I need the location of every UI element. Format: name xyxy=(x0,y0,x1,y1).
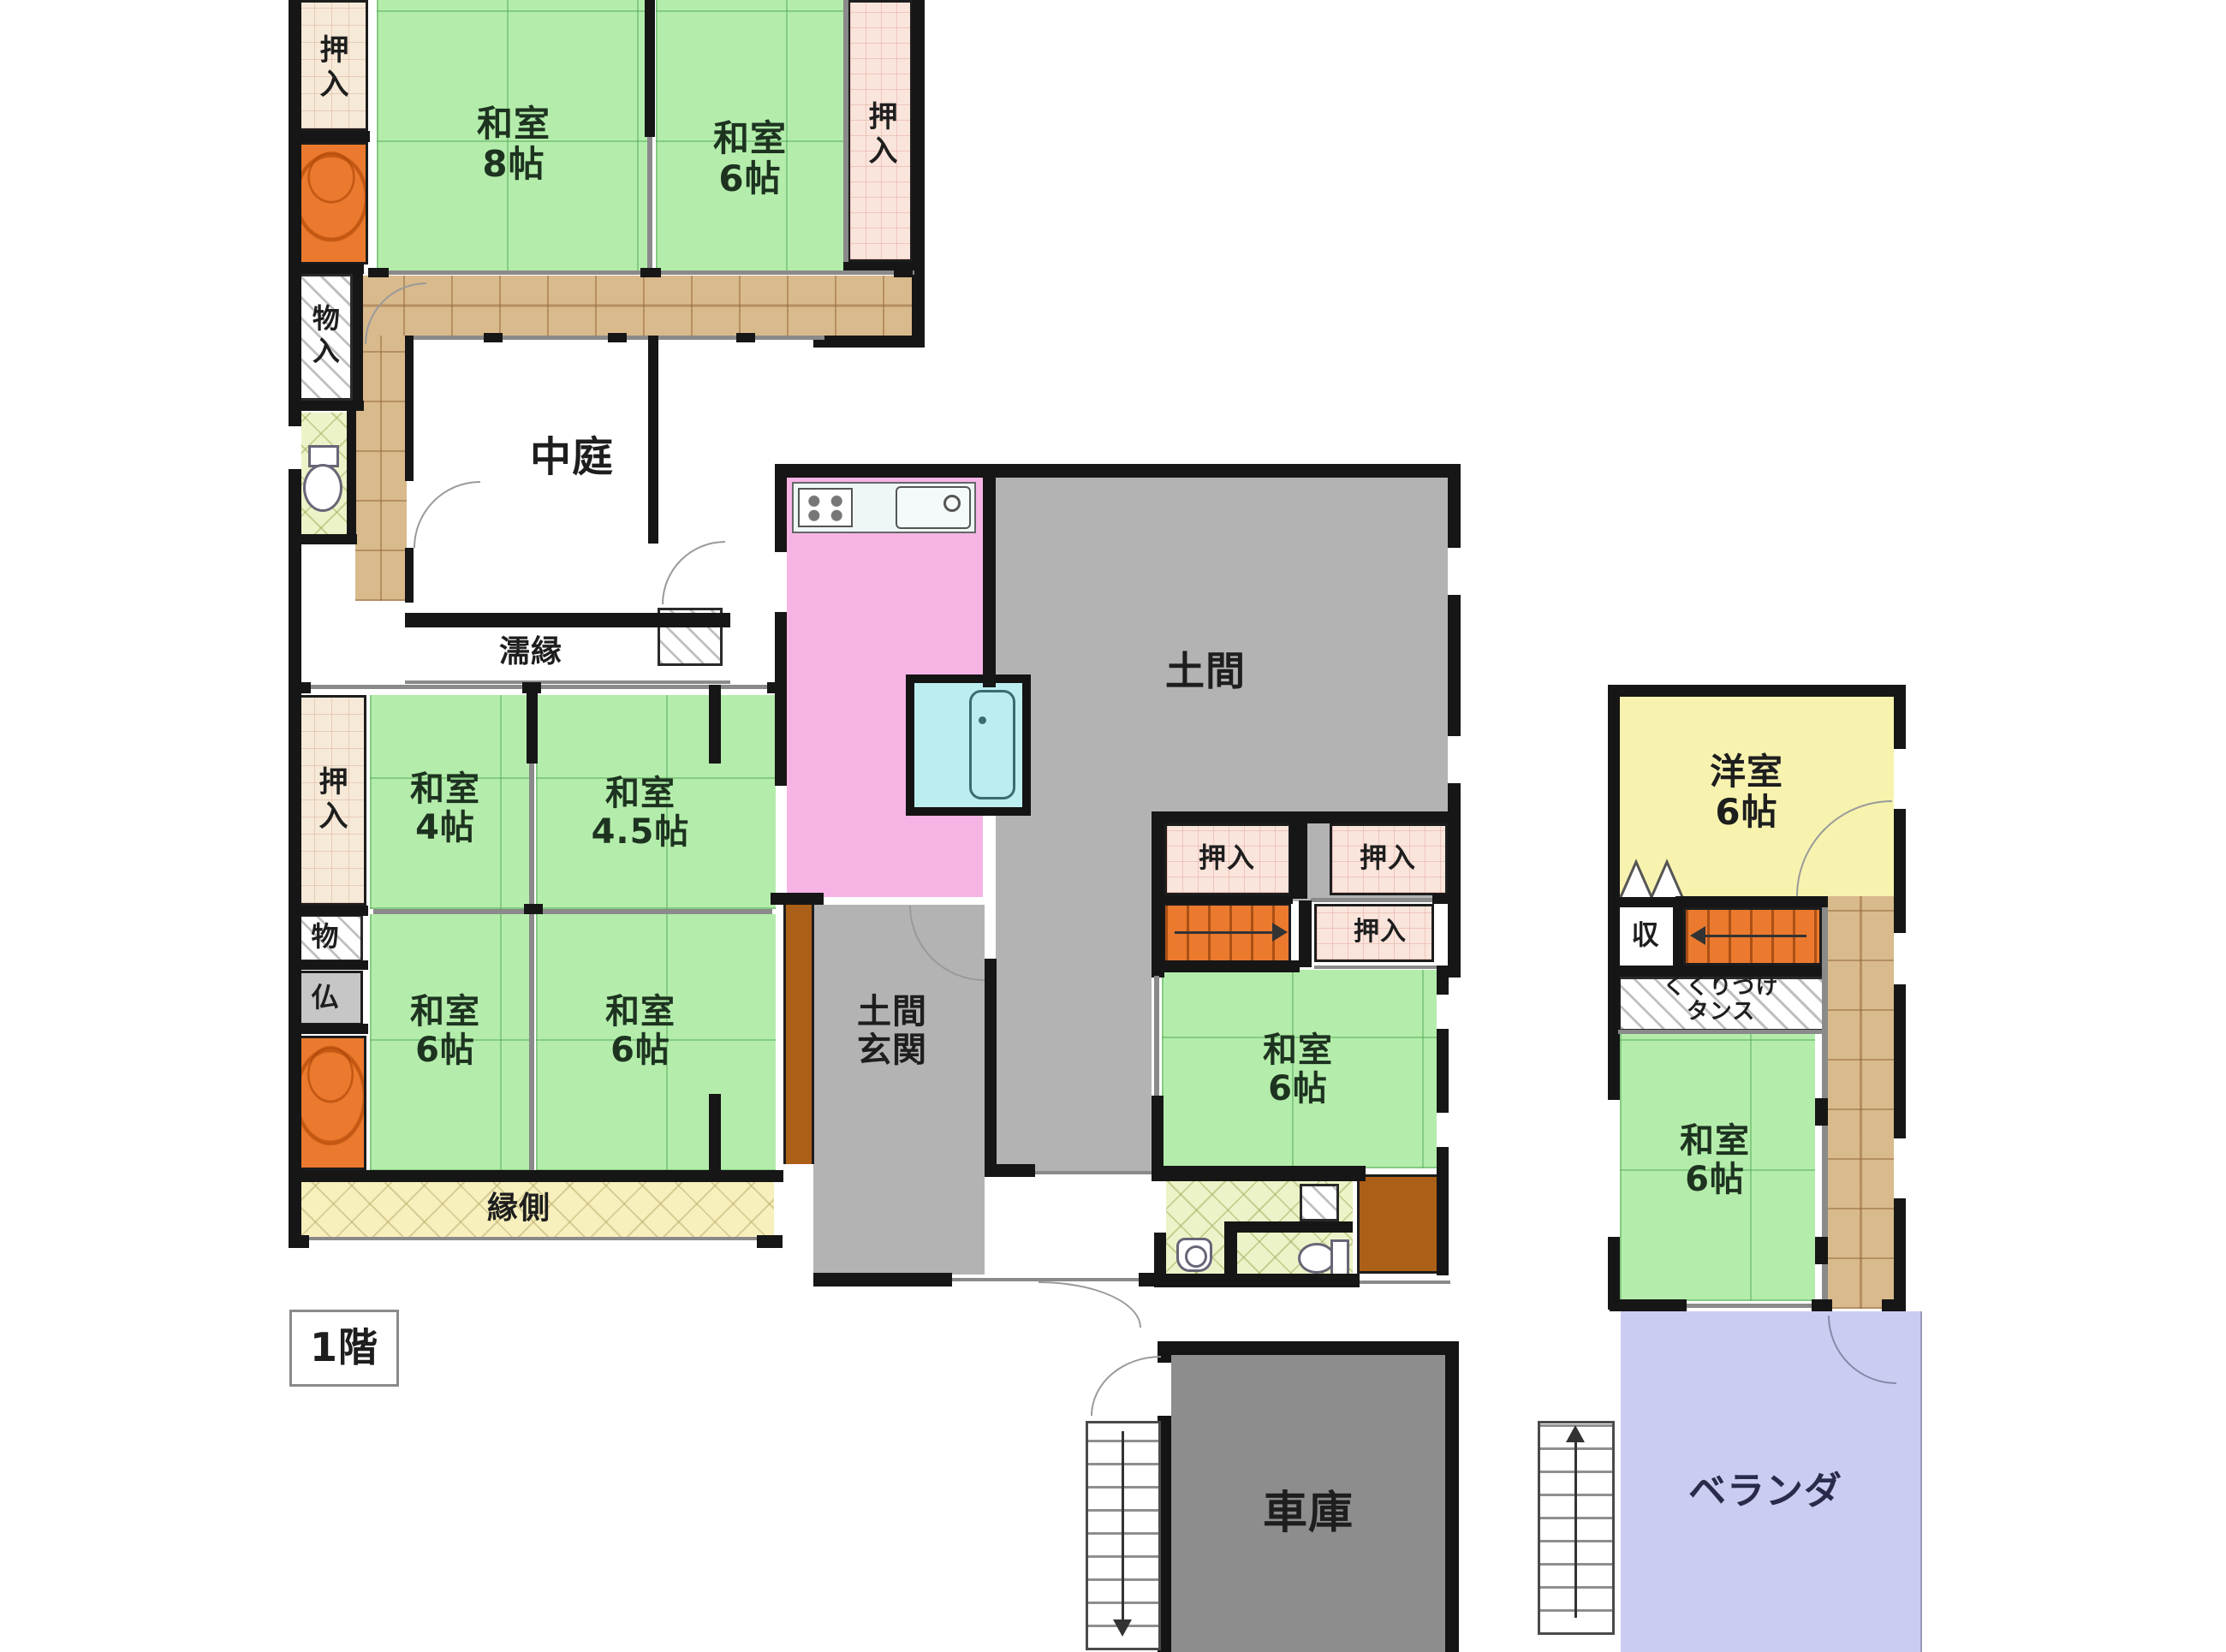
toilet-icon-west xyxy=(301,445,341,514)
wood-strip-genkan xyxy=(783,905,814,1164)
label-oshiire-d: 押入 xyxy=(1199,843,1255,874)
label-washitsu-6-right: 和室 6帖 xyxy=(1680,1122,1750,1199)
label-washitsu-6-top: 和室 6帖 xyxy=(713,118,787,199)
corridor-right-building xyxy=(1828,896,1894,1309)
label-veranda: ベランダ xyxy=(1688,1470,1842,1512)
label-washitsu-4: 和室 4帖 xyxy=(410,770,480,847)
label-mono: 物 xyxy=(311,922,339,953)
label-shako: 車庫 xyxy=(1263,1489,1354,1538)
label-washitsu-45: 和室 4.5帖 xyxy=(592,775,690,852)
tokonoma-alcove-mid xyxy=(295,1036,366,1170)
label-engawa: 縁側 xyxy=(487,1191,551,1226)
label-doma: 土間 xyxy=(1165,650,1246,694)
toilet-icon-east xyxy=(1298,1239,1349,1272)
passage-door-swing-icon xyxy=(662,541,725,604)
corridor-wood-left xyxy=(355,336,407,601)
corridor-wood-top xyxy=(355,276,912,336)
label-washitsu-6-mid: 和室 6帖 xyxy=(1263,1031,1333,1108)
label-washitsu-8: 和室 8帖 xyxy=(477,104,551,184)
sink-icon xyxy=(896,486,971,529)
bathtub-icon xyxy=(969,690,1015,799)
label-yoshitsu-6: 洋室 6帖 xyxy=(1710,752,1783,832)
entrance-door-swing-icon xyxy=(1039,1281,1141,1328)
label-oshiire-top-right: 押入 xyxy=(864,101,896,169)
garage-door-swing-icon xyxy=(1091,1356,1161,1416)
stove-icon xyxy=(798,488,853,527)
floor-badge: 1階 xyxy=(310,1326,378,1370)
bathroom xyxy=(906,674,1031,816)
label-butsudan: 仏 xyxy=(311,983,339,1013)
label-washitsu-6-a: 和室 6帖 xyxy=(410,993,480,1070)
tokonoma-alcove-top xyxy=(295,142,368,264)
label-doma-genkan: 土間 玄関 xyxy=(857,993,927,1070)
label-oshiire-mid-left: 押入 xyxy=(314,766,347,835)
bifold-door-icon xyxy=(1620,859,1683,898)
label-nakaniwa: 中庭 xyxy=(530,435,614,481)
label-oshiire-top-left: 押入 xyxy=(315,34,348,103)
label-tansu: くくりづけ タンス xyxy=(1663,975,1778,1025)
label-monoire: 物入 xyxy=(308,304,339,369)
label-oshiire-f: 押入 xyxy=(1354,918,1407,947)
doma-corridor xyxy=(996,899,1152,1174)
porch-brown xyxy=(1357,1174,1441,1274)
washroom-door-panel xyxy=(1300,1184,1339,1221)
label-oshiire-e: 押入 xyxy=(1360,843,1416,874)
label-washitsu-6-b: 和室 6帖 xyxy=(605,993,676,1070)
washbasin-icon xyxy=(1176,1238,1212,1272)
label-nureen: 濡縁 xyxy=(499,635,562,669)
label-shuunou: 収 xyxy=(1631,920,1659,951)
floor-plan: 押入 和室 8帖 和室 6帖 押入 物入 中庭 濡縁 押入 和室 4帖 和室 4… xyxy=(0,0,2226,1652)
